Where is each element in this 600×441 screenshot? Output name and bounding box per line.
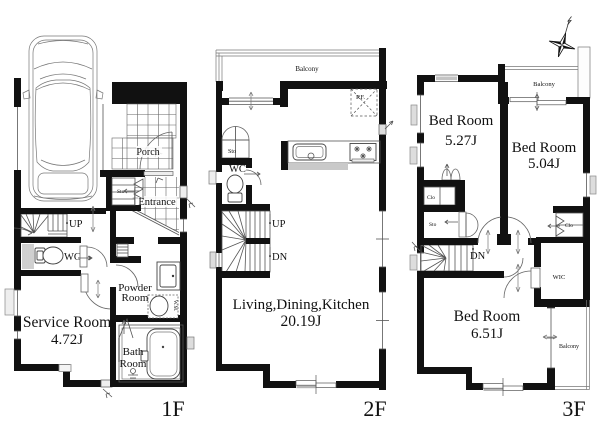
svg-text:Room: Room bbox=[122, 292, 149, 304]
svg-text:DN: DN bbox=[470, 251, 486, 262]
svg-text:Sto: Sto bbox=[429, 222, 437, 228]
svg-text:Service Room: Service Room bbox=[23, 314, 111, 331]
svg-text:WC: WC bbox=[229, 164, 246, 175]
svg-text:Bed Room: Bed Room bbox=[429, 113, 494, 129]
svg-text:20.19J: 20.19J bbox=[281, 313, 322, 330]
svg-text:Clo: Clo bbox=[565, 223, 573, 229]
svg-text:RF.: RF. bbox=[356, 94, 365, 101]
svg-text:WIC: WIC bbox=[553, 274, 566, 281]
svg-text:Entrance: Entrance bbox=[138, 197, 176, 208]
svg-text:UP: UP bbox=[272, 219, 286, 230]
svg-text:Bath: Bath bbox=[123, 346, 144, 358]
svg-text:3F: 3F bbox=[562, 396, 585, 421]
svg-text:1F: 1F bbox=[161, 396, 184, 421]
svg-text:Balcony: Balcony bbox=[295, 65, 319, 73]
svg-text:W.M.: W.M. bbox=[172, 300, 177, 311]
svg-text:2F: 2F bbox=[363, 396, 386, 421]
svg-text:Clo: Clo bbox=[427, 195, 435, 201]
svg-text:Bed Room: Bed Room bbox=[512, 140, 577, 156]
svg-text:Room: Room bbox=[120, 358, 147, 370]
svg-text:5.27J: 5.27J bbox=[445, 133, 477, 149]
svg-text:Sto: Sto bbox=[117, 189, 125, 195]
svg-text:Sto: Sto bbox=[228, 149, 236, 155]
svg-text:5.04J: 5.04J bbox=[528, 156, 560, 172]
svg-text:WC: WC bbox=[64, 252, 81, 263]
svg-text:Porch: Porch bbox=[136, 147, 159, 158]
svg-text:Living,Dining,Kitchen: Living,Dining,Kitchen bbox=[233, 297, 370, 313]
svg-text:Balcony: Balcony bbox=[533, 81, 555, 88]
svg-text:4.72J: 4.72J bbox=[51, 332, 83, 348]
svg-text:Balcony: Balcony bbox=[559, 344, 579, 350]
svg-text:6.51J: 6.51J bbox=[471, 326, 503, 342]
svg-text:Bed Room: Bed Room bbox=[454, 308, 521, 325]
svg-text:DN: DN bbox=[272, 252, 288, 263]
svg-text:UP: UP bbox=[69, 219, 83, 230]
